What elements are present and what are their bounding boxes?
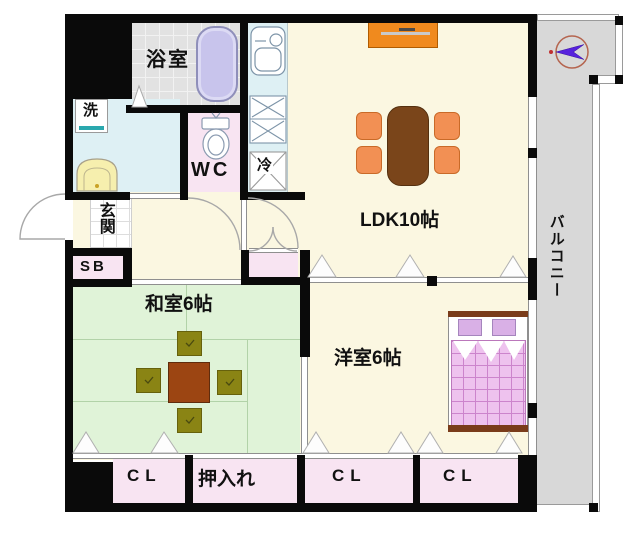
floorplan: 浴室 洗 WC 冷 LDK10帖 玄関 SB 和室6帖 洋室6帖 バルコニー C… [0, 0, 640, 534]
railing-post [589, 503, 598, 512]
bed-blanket [451, 340, 526, 426]
balcony-label: バルコニー [548, 214, 564, 299]
wall-block [65, 462, 113, 512]
fridge-label: 冷 [256, 158, 273, 174]
zabuton-icon [136, 368, 161, 393]
zabuton-icon [217, 370, 242, 395]
wc-label: WC [191, 160, 230, 181]
closet-mid-label: CL [332, 467, 367, 485]
dining-table-icon [387, 106, 429, 186]
wall [65, 192, 130, 200]
pillow-icon [492, 319, 516, 336]
ldk-partition[interactable] [310, 277, 528, 283]
closet-left-label: CL [127, 467, 162, 485]
washitsu-label: 和室6帖 [145, 295, 213, 315]
wall [528, 148, 537, 158]
railing-post [615, 16, 623, 25]
partition-stop-block [427, 276, 437, 286]
bathtub-icon [196, 26, 238, 102]
bed-headboard [448, 311, 528, 317]
oshiire-label: 押入れ [198, 470, 255, 490]
wall [297, 455, 305, 512]
wall [528, 258, 537, 300]
wall [126, 105, 248, 113]
tv-icon [381, 32, 430, 35]
wall [413, 455, 420, 512]
wall-block [518, 455, 537, 512]
genkan-label: 玄関 [96, 202, 113, 234]
chair-icon [356, 146, 382, 174]
balcony-railing [615, 16, 623, 84]
bed-footboard [448, 425, 528, 432]
hall-washitsu-door[interactable] [132, 279, 241, 285]
zabuton-icon [177, 331, 202, 356]
tatami-line [247, 339, 248, 457]
zabuton-icon [177, 408, 202, 433]
wall [185, 455, 193, 512]
washer-label: 洗 [83, 103, 98, 119]
chair-icon [356, 112, 382, 140]
closet-right-label: CL [443, 467, 478, 485]
wall [528, 14, 537, 97]
chair-icon [434, 146, 460, 174]
hall-low-wall [241, 198, 247, 250]
railing-post [615, 75, 623, 84]
wall-corner-block [65, 14, 132, 99]
balcony-railing [537, 14, 619, 21]
wall [65, 279, 132, 287]
washitsu-yoshitsu-door[interactable] [301, 357, 308, 455]
wall [123, 252, 132, 279]
wall [240, 192, 305, 200]
balcony-railing [592, 84, 600, 512]
tv-board-icon [368, 22, 438, 48]
wall [300, 250, 310, 357]
wall [528, 403, 537, 418]
wall [240, 14, 248, 200]
yoshitsu-label: 洋室6帖 [334, 349, 402, 369]
pillow-icon [458, 319, 482, 336]
bath-label: 浴室 [146, 50, 190, 71]
washroom-door[interactable] [130, 193, 180, 199]
railing-post [589, 75, 598, 84]
entry-door-arc[interactable] [20, 194, 65, 239]
wall [65, 248, 132, 256]
hall-closet [249, 253, 298, 278]
shoe-box-label: SB [80, 259, 107, 275]
closet-row-line [73, 453, 518, 459]
low-table-icon [168, 362, 210, 403]
washing-machine-tray [79, 126, 104, 130]
wall [65, 14, 537, 23]
wall [180, 113, 188, 200]
ldk-label: LDK10帖 [360, 211, 439, 231]
tv-icon-base [399, 28, 415, 31]
tatami-line [73, 401, 247, 402]
hall-closet-door[interactable] [249, 248, 298, 253]
chair-icon [434, 112, 460, 140]
